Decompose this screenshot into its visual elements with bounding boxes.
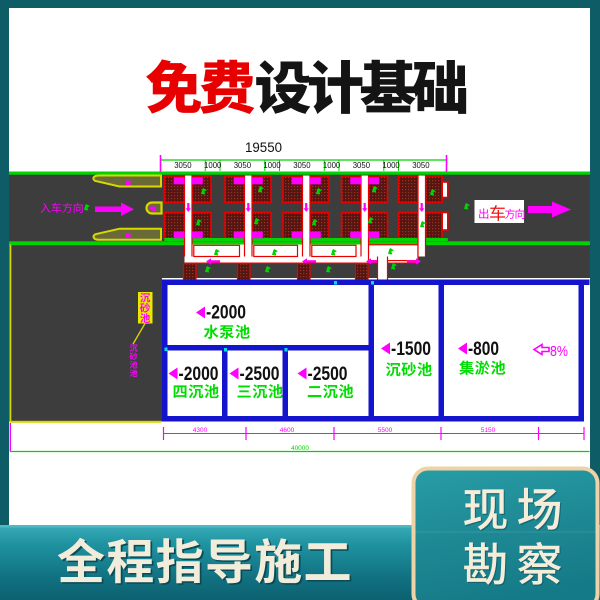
svg-text:5500: 5500 [378,427,393,434]
svg-text:19550: 19550 [245,140,282,155]
svg-text:8%: 8% [550,344,568,360]
svg-text:-2500: -2500 [308,363,348,385]
svg-text:1000: 1000 [382,161,400,170]
svg-text:3050: 3050 [353,161,371,170]
svg-text:3050: 3050 [234,161,252,170]
svg-text:-800: -800 [468,338,499,360]
svg-text:-2500: -2500 [240,363,280,385]
svg-text:-1500: -1500 [391,338,431,360]
svg-text:-2000: -2000 [179,363,219,385]
svg-text:-2000: -2000 [206,302,246,324]
svg-text:3050: 3050 [174,161,192,170]
svg-text:3050: 3050 [293,161,311,170]
svg-text:3050: 3050 [412,161,430,170]
svg-text:5150: 5150 [481,427,496,434]
svg-text:1000: 1000 [323,161,341,170]
svg-text:1000: 1000 [204,161,222,170]
svg-text:40000: 40000 [291,445,309,452]
svg-text:4300: 4300 [193,427,208,434]
svg-text:4600: 4600 [280,427,295,434]
svg-text:1000: 1000 [263,161,281,170]
